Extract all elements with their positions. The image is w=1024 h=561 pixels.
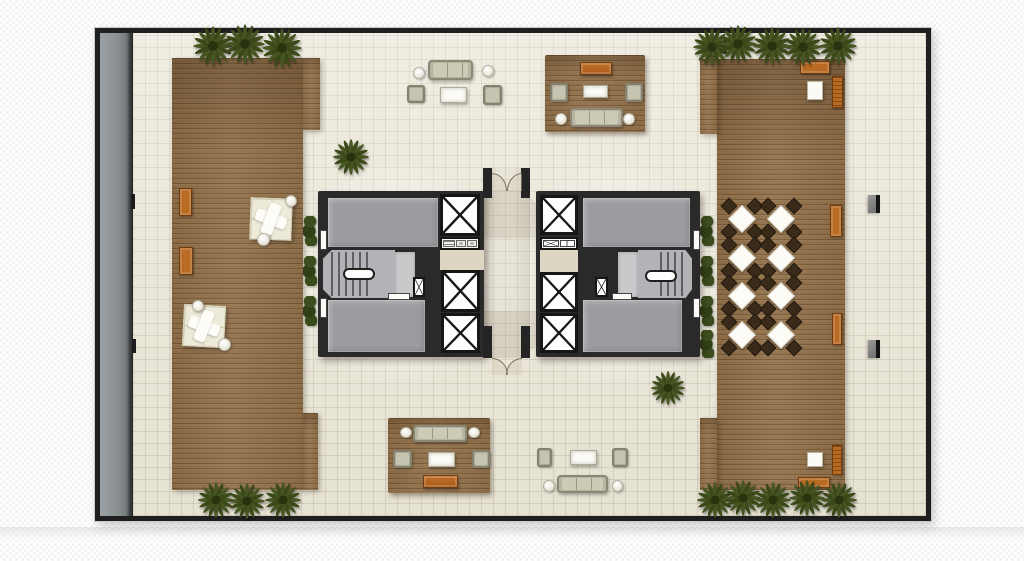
coffee-table: [428, 452, 455, 467]
elevator-lobby: [540, 250, 578, 272]
wall-mark: [131, 194, 135, 209]
palm-tree: [331, 137, 371, 177]
dining-set: [763, 240, 799, 276]
wall-fixture: [868, 340, 880, 358]
shrub: [303, 296, 317, 326]
side-table: [482, 65, 494, 77]
shrub: [700, 256, 714, 286]
door-leaf: [693, 230, 700, 250]
shrub: [303, 216, 317, 246]
side-table: [468, 427, 480, 438]
core-room: [583, 300, 682, 352]
wall-stub: [483, 326, 492, 358]
x-cross-icon: [597, 279, 606, 295]
armchair: [483, 85, 502, 105]
core-fixtures: [440, 237, 480, 250]
palm-tree: [819, 480, 859, 520]
outdoor-table: [807, 452, 823, 467]
x-cross-icon: [444, 316, 477, 350]
core-room: [583, 198, 690, 247]
side-table: [192, 300, 204, 312]
elevator-shaft: [441, 313, 480, 353]
sink: [467, 240, 477, 247]
shrub: [700, 216, 714, 246]
dining-set: [724, 240, 760, 276]
perimeter-walkway: [100, 33, 133, 516]
palm-tree: [227, 481, 267, 521]
mini-shaft: [543, 240, 559, 247]
palm-fronds-icon: [263, 480, 303, 520]
core-room: [328, 198, 438, 247]
floor-plan: [95, 28, 931, 521]
x-cross-icon: [543, 275, 575, 309]
armchair: [407, 85, 425, 103]
service-shaft: [413, 277, 425, 297]
armchair: [550, 83, 568, 102]
side-table: [257, 233, 270, 246]
x-cross-icon: [443, 197, 477, 233]
side-table: [285, 195, 297, 207]
palm-tree: [263, 480, 303, 520]
sink: [456, 240, 466, 247]
core-fixtures: [540, 237, 578, 250]
coffee-table: [583, 85, 608, 98]
palm-fronds-icon: [817, 25, 859, 67]
stair-landing: [618, 252, 638, 297]
x-cross-icon: [543, 198, 575, 232]
side-table: [612, 480, 623, 492]
sofa: [570, 108, 623, 127]
door-leaf: [693, 298, 700, 318]
elevator-shaft: [540, 195, 578, 235]
palm-fronds-icon: [819, 480, 859, 520]
elevator-shaft: [441, 270, 480, 312]
elevator-lobby: [440, 250, 484, 270]
door-leaf: [320, 230, 327, 250]
wall-stub: [521, 326, 530, 358]
dining-set: [724, 317, 760, 353]
wall-mark: [132, 339, 136, 353]
elevator-shaft: [540, 272, 578, 312]
coffee-table: [570, 450, 597, 465]
wall-stub: [483, 168, 492, 198]
door-leaf: [320, 298, 327, 318]
armchair: [472, 450, 490, 468]
sun-lounger: [832, 76, 843, 108]
armchair: [612, 448, 628, 467]
palm-fronds-icon: [331, 137, 371, 177]
sofa: [413, 425, 467, 442]
dining-set: [763, 201, 799, 237]
service-shaft: [595, 277, 608, 297]
wood-deck: [303, 413, 318, 490]
coffee-table: [440, 87, 467, 103]
dining-set: [763, 278, 799, 314]
door-leaf: [612, 293, 632, 300]
split-cabinet: [560, 240, 576, 247]
dining-set: [724, 278, 760, 314]
bench: [179, 247, 193, 275]
sun-lounger: [832, 445, 842, 475]
stair-landing: [395, 252, 415, 297]
console-table: [580, 62, 612, 75]
armchair: [625, 83, 643, 102]
outdoor-table: [807, 81, 823, 100]
shelf-unit: [443, 240, 455, 247]
side-table: [543, 480, 555, 492]
sofa: [557, 475, 608, 493]
stair-handrail: [343, 268, 375, 280]
x-cross-icon: [544, 241, 558, 246]
bench: [830, 205, 842, 237]
shrub: [700, 330, 714, 358]
armchair: [537, 448, 552, 467]
x-cross-icon: [415, 279, 423, 295]
armchair: [393, 450, 412, 468]
palm-fronds-icon: [649, 369, 687, 407]
palm-tree: [260, 26, 304, 70]
side-table: [413, 67, 425, 79]
elevator-shaft: [440, 194, 480, 236]
stair-handrail: [645, 270, 677, 282]
side-table: [400, 427, 412, 438]
wall-fixture: [868, 195, 880, 213]
screenshot-canvas: [0, 0, 1024, 561]
dining-set: [763, 317, 799, 353]
page-shadow: [0, 527, 1024, 539]
palm-fronds-icon: [227, 481, 267, 521]
core-room: [328, 300, 425, 352]
x-cross-icon: [543, 316, 575, 350]
wood-deck: [303, 58, 320, 130]
palm-tree: [649, 369, 687, 407]
side-table: [623, 113, 635, 125]
palm-tree: [817, 25, 859, 67]
x-cross-icon: [444, 273, 477, 309]
wood-deck: [700, 59, 717, 134]
door-leaf: [388, 293, 410, 300]
side-table: [555, 113, 567, 125]
palm-fronds-icon: [260, 26, 304, 70]
dining-set: [724, 201, 760, 237]
console-table: [423, 475, 458, 488]
bench: [179, 188, 192, 216]
shrub: [700, 296, 714, 326]
wall-stub: [521, 168, 530, 198]
sofa: [428, 60, 473, 80]
elevator-shaft: [540, 313, 578, 353]
bench: [832, 313, 842, 345]
shrub: [303, 256, 317, 286]
side-table: [218, 338, 231, 351]
